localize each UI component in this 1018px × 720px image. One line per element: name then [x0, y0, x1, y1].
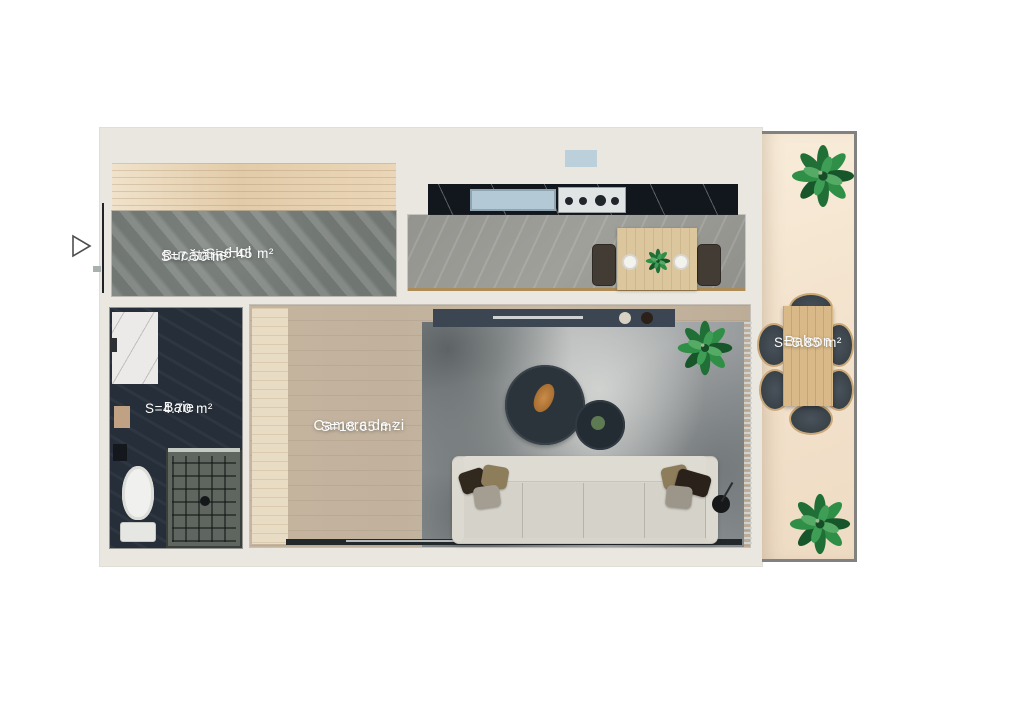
room-area: S=4.70 m²: [145, 401, 213, 416]
room-area: S=7.50 m²: [161, 249, 229, 264]
sofa-armrest: [452, 458, 464, 542]
kitchen-counter: [428, 184, 738, 215]
balcony: Balcon S=5.85 m²: [762, 131, 857, 562]
toilet-tank: [120, 522, 156, 542]
plate: [622, 254, 638, 270]
burner: [579, 197, 587, 205]
toilet: [118, 466, 160, 544]
room-label-baie: Baie S=4.70 m²: [116, 380, 242, 436]
window-track: [346, 540, 466, 542]
kitchen-cooktop: [558, 187, 626, 213]
dining-chair: [592, 244, 616, 286]
living-room-plant-icon: [676, 316, 734, 380]
burner: [565, 197, 573, 205]
faucet: [110, 338, 117, 352]
entrance-arrow-icon: [70, 233, 94, 259]
plate: [673, 254, 689, 270]
apartment-slab: Hol S=6.45 m² Bucătărie S=7.50 m²: [100, 128, 762, 566]
room-label-camera-de-zi: Camera de zi S=18.65 m²: [284, 397, 434, 455]
tv-console: [433, 309, 675, 327]
side-table: [575, 400, 625, 450]
room-label-bucatarie: Bucătărie S=7.50 m²: [100, 226, 290, 286]
leaf-decor: [530, 381, 559, 416]
soundbar: [493, 316, 583, 319]
coffee-table: [505, 365, 585, 445]
pillow: [665, 485, 693, 510]
balcony-plant-icon: [790, 139, 856, 213]
room-area: S=5.85 m²: [774, 335, 842, 350]
rug-fringe: [744, 322, 752, 547]
sofa: [452, 456, 718, 544]
balcony-plant-icon: [788, 489, 852, 559]
shower-glass: [168, 448, 240, 452]
bathroom-floor: Baie S=4.70 m²: [110, 308, 242, 548]
bathroom-sink: [112, 312, 158, 384]
pillow: [473, 484, 502, 509]
kitchen-window: [565, 150, 597, 167]
shower-drain: [200, 496, 210, 506]
burner: [611, 197, 619, 205]
living-room-floor: Camera de zi S=18.65 m²: [250, 305, 750, 547]
living-room-door-area: [252, 308, 288, 544]
room-label-balcon: Balcon S=5.85 m²: [762, 319, 854, 365]
burner: [595, 195, 606, 206]
floor-lamp: [712, 495, 730, 513]
balcony-chair: [789, 403, 833, 435]
room-area: S=18.65 m²: [321, 419, 397, 434]
dining-chair: [697, 244, 721, 286]
side-dish: [591, 416, 605, 430]
table-plant-icon: [645, 248, 671, 274]
hallway-wardrobe: [112, 163, 396, 211]
toilet-bowl: [122, 466, 154, 520]
kitchen-sink: [470, 189, 556, 211]
bathroom-cabinet: [113, 444, 127, 461]
floor-plan-canvas: Hol S=6.45 m² Bucătărie S=7.50 m²: [0, 0, 1018, 720]
dining-table: [617, 228, 697, 290]
decor-plate: [619, 312, 631, 324]
decor-bowl: [641, 312, 653, 324]
